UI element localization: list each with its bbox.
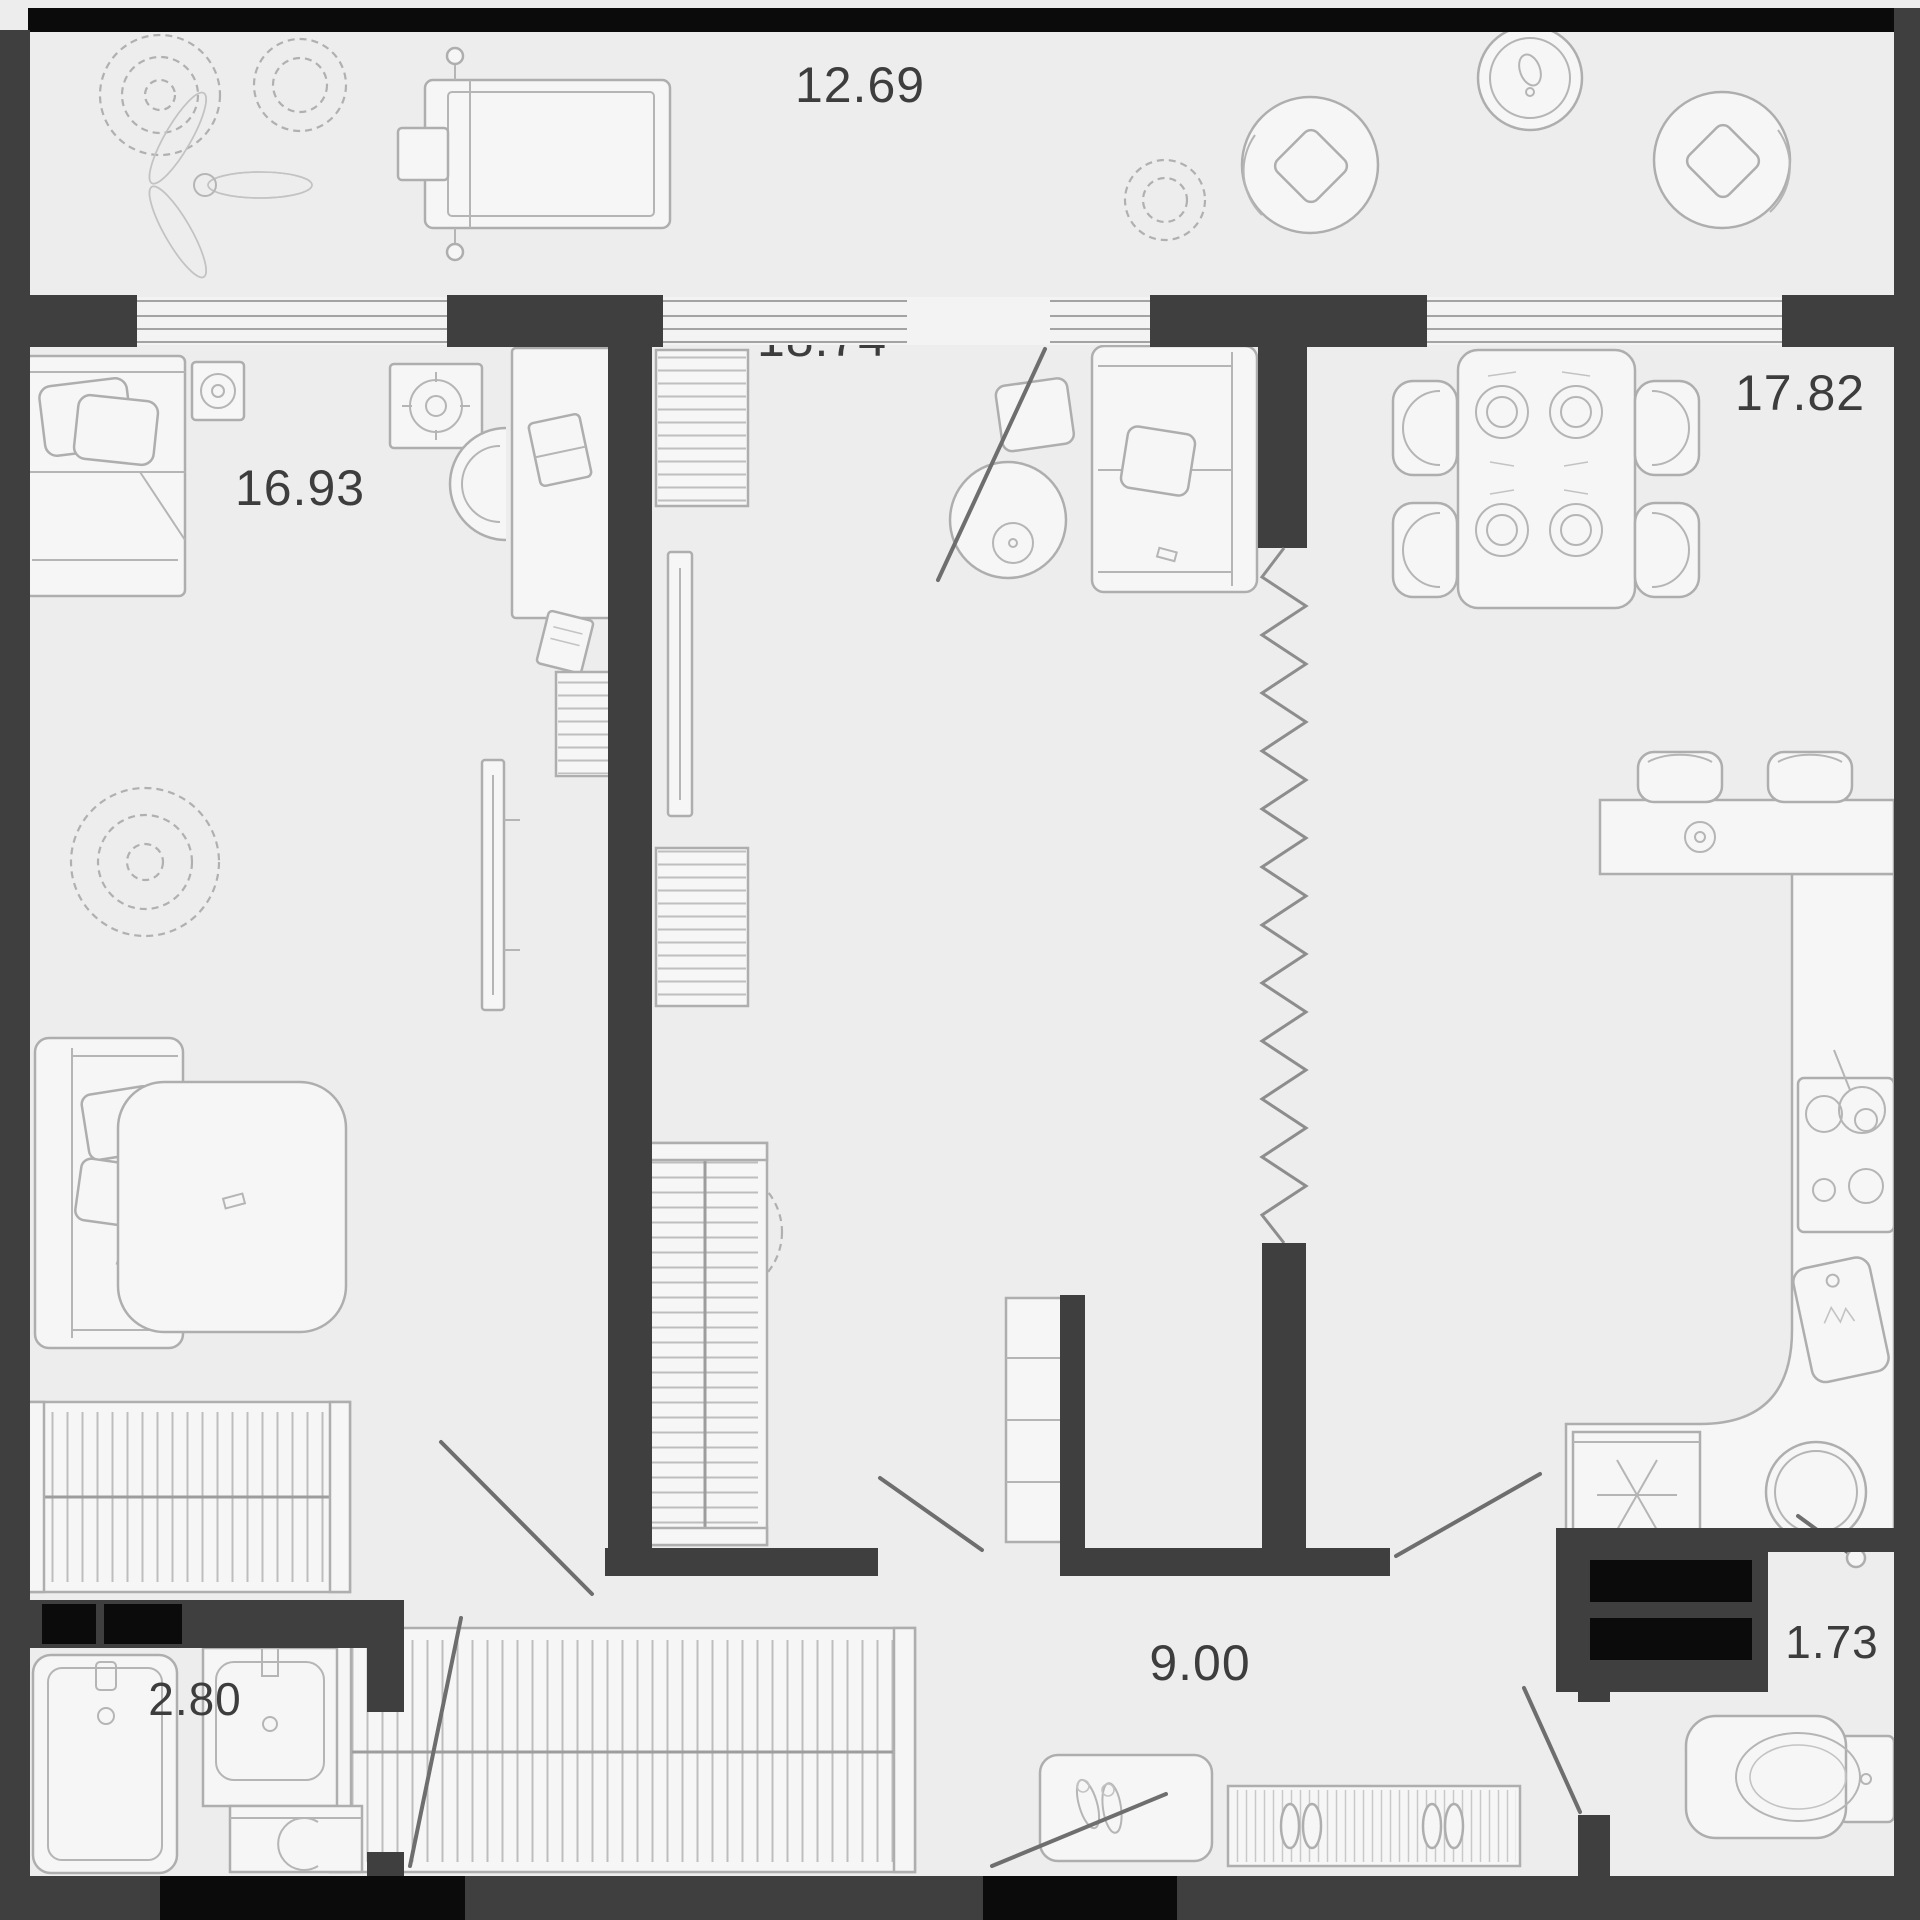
bathroom-area-label: 2.80 (148, 1673, 242, 1725)
wall-wc-left-upper (1578, 1692, 1610, 1702)
balcony-area-label: 12.69 (795, 57, 925, 113)
hallway-area-label: 9.00 (1149, 1635, 1250, 1691)
wall-stub-top (1258, 343, 1307, 548)
bathroom-sink (203, 1648, 337, 1806)
wardrobe (24, 1402, 350, 1592)
wall-hall-top-left (605, 1548, 878, 1576)
doormat (1228, 1786, 1520, 1866)
media-dresser (656, 350, 748, 506)
drawer-unit (556, 672, 616, 776)
tall-wardrobe (643, 1143, 767, 1545)
kitchen-area-label: 17.82 (1735, 365, 1865, 421)
floor-plan-drawing: 12.69 (0, 0, 1920, 1920)
stove (1798, 1050, 1894, 1232)
wall-stub-bottom (1262, 1243, 1306, 1548)
dining-chair (1635, 381, 1699, 475)
bedroom-table (118, 1082, 346, 1332)
ventilation-shaft (42, 1604, 96, 1644)
wall-top (28, 8, 1894, 32)
window-band (30, 297, 1894, 345)
entrance-door-opening (983, 1876, 1177, 1920)
tv (668, 552, 692, 816)
bedroom-area-label: 16.93 (235, 460, 365, 516)
washing-machine (230, 1806, 362, 1872)
dining-table (1458, 350, 1635, 608)
bed (25, 356, 185, 596)
wc-area-label: 1.73 (1785, 1616, 1879, 1668)
wall-bedroom-living (608, 345, 652, 1576)
wall-bathroom-right-lower (367, 1852, 404, 1876)
round-chair (1654, 92, 1790, 228)
ceiling-light (390, 364, 482, 448)
wall-wc-top (1556, 1528, 1894, 1552)
dining-chair (1393, 381, 1457, 475)
ventilation-shaft (1590, 1560, 1752, 1602)
wall-hall-vertical (1060, 1295, 1085, 1576)
ventilation-shaft (104, 1604, 182, 1644)
sun-lounger (398, 48, 670, 260)
ventilation-shaft (1590, 1618, 1752, 1660)
dining-chair (1393, 503, 1457, 597)
bar-counter (1600, 800, 1894, 874)
hall-cabinet (1006, 1298, 1062, 1542)
floor-plan-page: 12.69 (0, 0, 1920, 1920)
wall-left (0, 30, 30, 1920)
nightstand (192, 362, 244, 420)
desk (512, 348, 612, 618)
bar-stool (1638, 752, 1722, 802)
dining-chair (1635, 503, 1699, 597)
wall-right (1894, 8, 1920, 1920)
shaft-bottom-left (160, 1876, 465, 1920)
side-table (1478, 26, 1582, 130)
bar-stool (1768, 752, 1852, 802)
wall-bathroom-right-upper (367, 1648, 404, 1712)
media-dresser (656, 848, 748, 1006)
wall-wc-left-lower (1578, 1815, 1610, 1876)
round-chair (1242, 97, 1378, 233)
wall-hall-top-right (1085, 1548, 1390, 1576)
shoe-mat (1040, 1755, 1212, 1861)
